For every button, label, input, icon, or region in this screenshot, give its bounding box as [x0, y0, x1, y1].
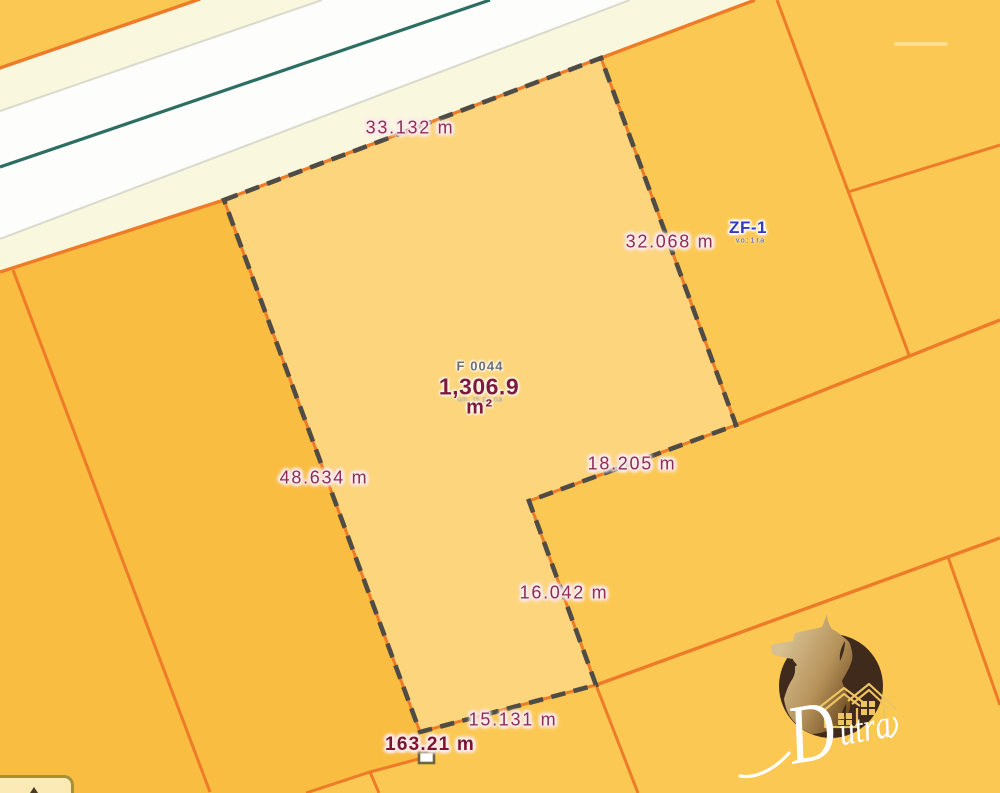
- svg-text:utra: utra: [835, 701, 894, 754]
